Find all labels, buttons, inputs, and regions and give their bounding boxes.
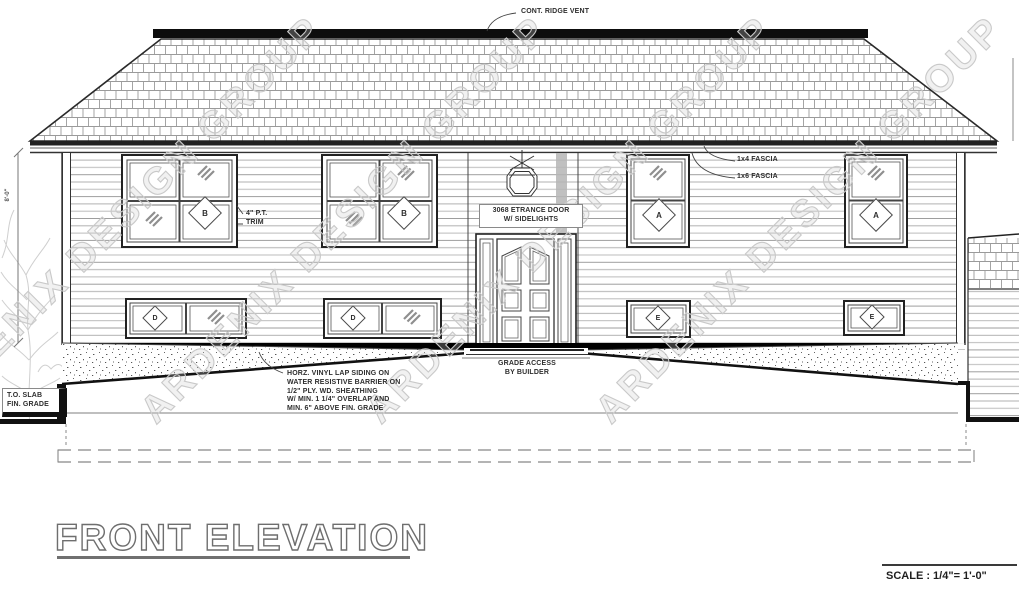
note-pt-trim: 4" P.T. TRIM <box>246 210 267 228</box>
footing <box>58 413 974 462</box>
note-siding: HORZ. VINYL LAP SIDING ON WATER RESISTIV… <box>287 370 400 414</box>
window-tag-d1: D <box>143 306 167 330</box>
window-tag-e1: E <box>646 306 670 330</box>
window-tag-b1: B <box>190 198 220 228</box>
elevation-linework <box>0 0 1019 593</box>
left-dimension-label: 8'-0" <box>5 180 11 210</box>
title-underline <box>57 556 410 559</box>
note-fascia-1x4: 1x4 FASCIA <box>737 156 778 165</box>
drawing-title: FRONT ELEVATION <box>55 517 429 559</box>
note-ridge-vent: CONT. RIDGE VENT <box>521 8 589 17</box>
note-entrance-door: 3068 ETRANCE DOOR W/ SIDELIGHTS <box>479 204 583 228</box>
note-grade-access: GRADE ACCESS BY BUILDER <box>494 360 560 378</box>
window-tag-a1: A <box>644 200 674 230</box>
drawing-sheet: ARDENIX DESIGN GROUP ARDENIX DESIGN GROU… <box>0 0 1019 593</box>
window-tag-a2: A <box>861 200 891 230</box>
note-slab-grade: T.O. SLAB FIN. GRADE <box>2 388 67 417</box>
scale-rule <box>882 564 1017 566</box>
right-structure <box>968 234 1019 418</box>
dimension-line <box>14 148 23 347</box>
window-tag-b2: B <box>389 198 419 228</box>
scale-label: SCALE : 1/4"= 1'-0" <box>886 570 987 582</box>
window-tag-e2: E <box>860 305 884 329</box>
porch-light <box>507 150 537 196</box>
fascia <box>30 141 997 153</box>
window-b2 <box>322 155 437 247</box>
window-tag-d2: D <box>341 306 365 330</box>
ridge-vent-bar <box>153 29 868 38</box>
note-fascia-1x6: 1x6 FASCIA <box>737 173 778 182</box>
entrance-door <box>476 234 576 352</box>
door-steps <box>462 348 590 359</box>
roof <box>30 39 997 141</box>
